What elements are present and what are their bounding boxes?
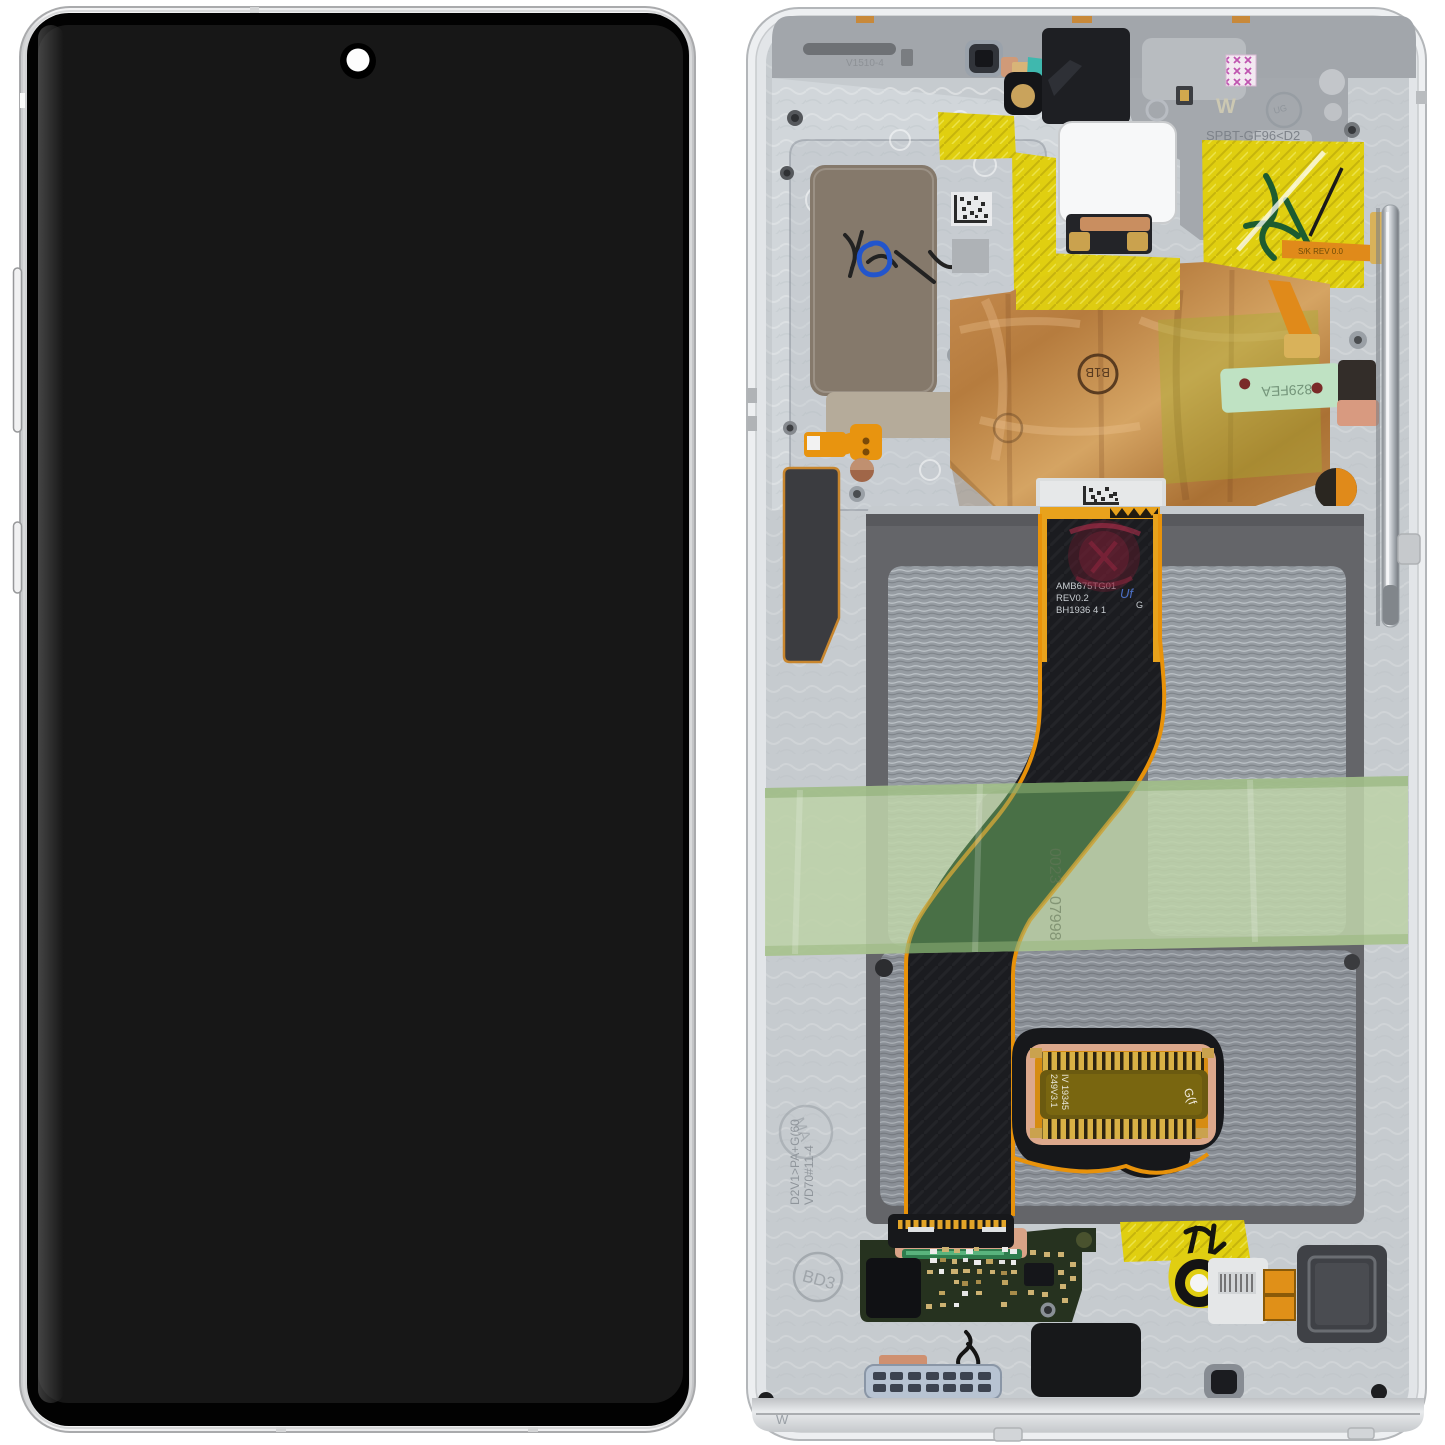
svg-text:BH1936 4 1: BH1936 4 1 [1056, 605, 1106, 616]
svg-text:S/K REV 0.0: S/K REV 0.0 [1298, 247, 1343, 256]
svg-text:IV 19345: IV 19345 [1060, 1074, 1070, 1110]
svg-text:0023: 0023 [1046, 848, 1063, 884]
svg-text:829FEA: 829FEA [1261, 381, 1313, 400]
svg-text:B1B: B1B [1085, 365, 1110, 380]
svg-text:REV0.2: REV0.2 [1056, 593, 1089, 604]
svg-text:Uf: Uf [1120, 586, 1134, 601]
svg-text:07998: 07998 [1046, 896, 1063, 941]
svg-text:D2V1>PA+G(60: D2V1>PA+G(60 [788, 1119, 802, 1205]
svg-text:249V3.1: 249V3.1 [1049, 1074, 1059, 1108]
svg-text:W: W [1216, 95, 1236, 118]
svg-text:SPBT-GF96<D2: SPBT-GF96<D2 [1206, 128, 1300, 143]
svg-text:V1510-4: V1510-4 [846, 58, 884, 69]
svg-text:VD70#11-4: VD70#11-4 [802, 1145, 816, 1205]
svg-text:W: W [776, 1412, 789, 1427]
svg-text:G: G [1136, 600, 1143, 610]
